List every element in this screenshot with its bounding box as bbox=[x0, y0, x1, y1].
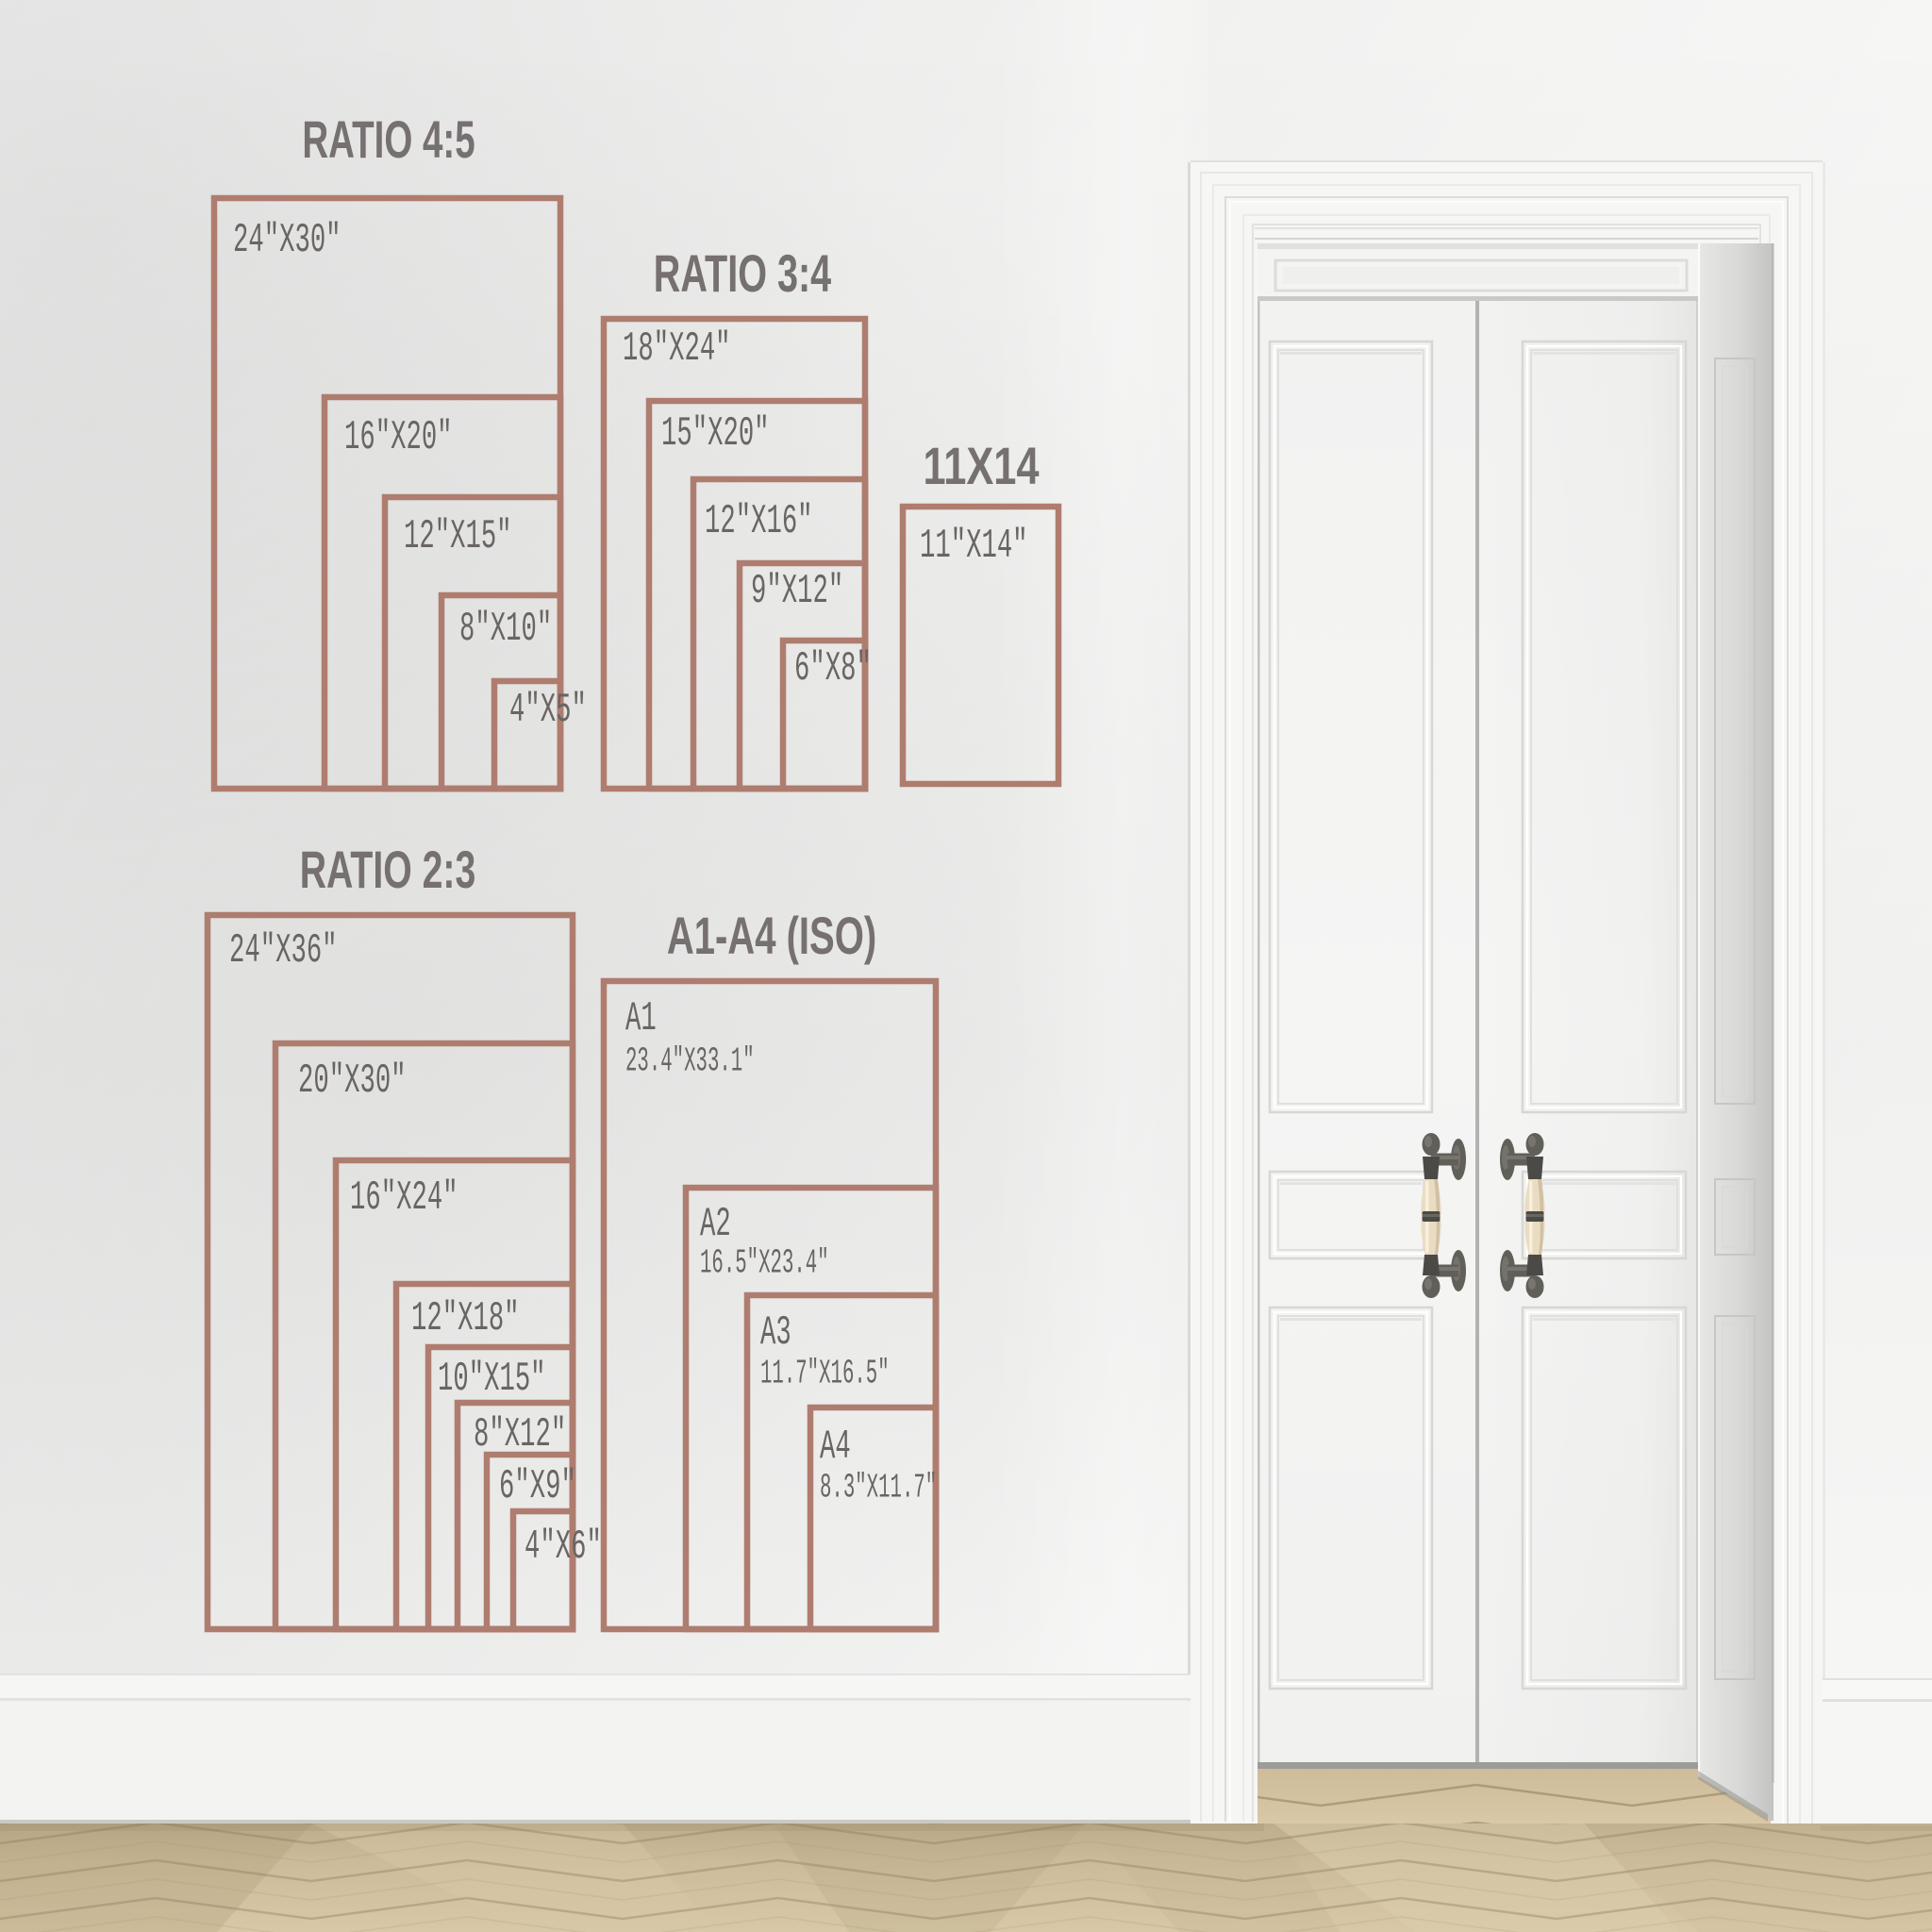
svg-text:6"X9": 6"X9" bbox=[499, 1463, 576, 1509]
svg-text:RATIO 4:5: RATIO 4:5 bbox=[302, 110, 475, 170]
svg-text:9"X12": 9"X12" bbox=[751, 568, 843, 614]
svg-text:A1-A4 (ISO): A1-A4 (ISO) bbox=[667, 908, 876, 966]
svg-text:A1: A1 bbox=[625, 995, 657, 1041]
svg-text:A4: A4 bbox=[820, 1424, 851, 1470]
svg-text:10"X15": 10"X15" bbox=[438, 1356, 546, 1402]
svg-text:12"X16": 12"X16" bbox=[705, 498, 813, 544]
svg-text:18"X24": 18"X24" bbox=[623, 325, 731, 372]
svg-text:4"X6": 4"X6" bbox=[525, 1524, 602, 1570]
svg-text:A2: A2 bbox=[700, 1201, 731, 1247]
svg-text:A3: A3 bbox=[760, 1309, 791, 1356]
svg-text:16.5"X23.4": 16.5"X23.4" bbox=[700, 1244, 829, 1282]
svg-text:16"X24": 16"X24" bbox=[350, 1174, 458, 1221]
svg-text:12"X15": 12"X15" bbox=[404, 513, 512, 559]
svg-text:8"X12": 8"X12" bbox=[474, 1411, 566, 1457]
svg-text:23.4"X33.1": 23.4"X33.1" bbox=[625, 1042, 755, 1080]
svg-text:11.7"X16.5": 11.7"X16.5" bbox=[760, 1355, 890, 1392]
svg-text:12"X18": 12"X18" bbox=[411, 1295, 520, 1341]
svg-text:8.3"X11.7": 8.3"X11.7" bbox=[820, 1469, 937, 1507]
svg-text:6"X8": 6"X8" bbox=[794, 645, 872, 691]
svg-text:11X14: 11X14 bbox=[923, 437, 1039, 496]
svg-text:24"X36": 24"X36" bbox=[229, 927, 338, 974]
svg-text:8"X10": 8"X10" bbox=[459, 606, 552, 652]
svg-text:11"X14": 11"X14" bbox=[920, 523, 1028, 569]
svg-text:15"X20": 15"X20" bbox=[661, 410, 770, 457]
svg-text:RATIO 3:4: RATIO 3:4 bbox=[654, 244, 831, 303]
svg-text:24"X30": 24"X30" bbox=[233, 217, 341, 263]
svg-text:4"X5": 4"X5" bbox=[509, 687, 587, 733]
svg-text:16"X20": 16"X20" bbox=[344, 414, 453, 460]
svg-text:20"X30": 20"X30" bbox=[298, 1058, 407, 1104]
svg-text:RATIO 2:3: RATIO 2:3 bbox=[300, 841, 476, 900]
